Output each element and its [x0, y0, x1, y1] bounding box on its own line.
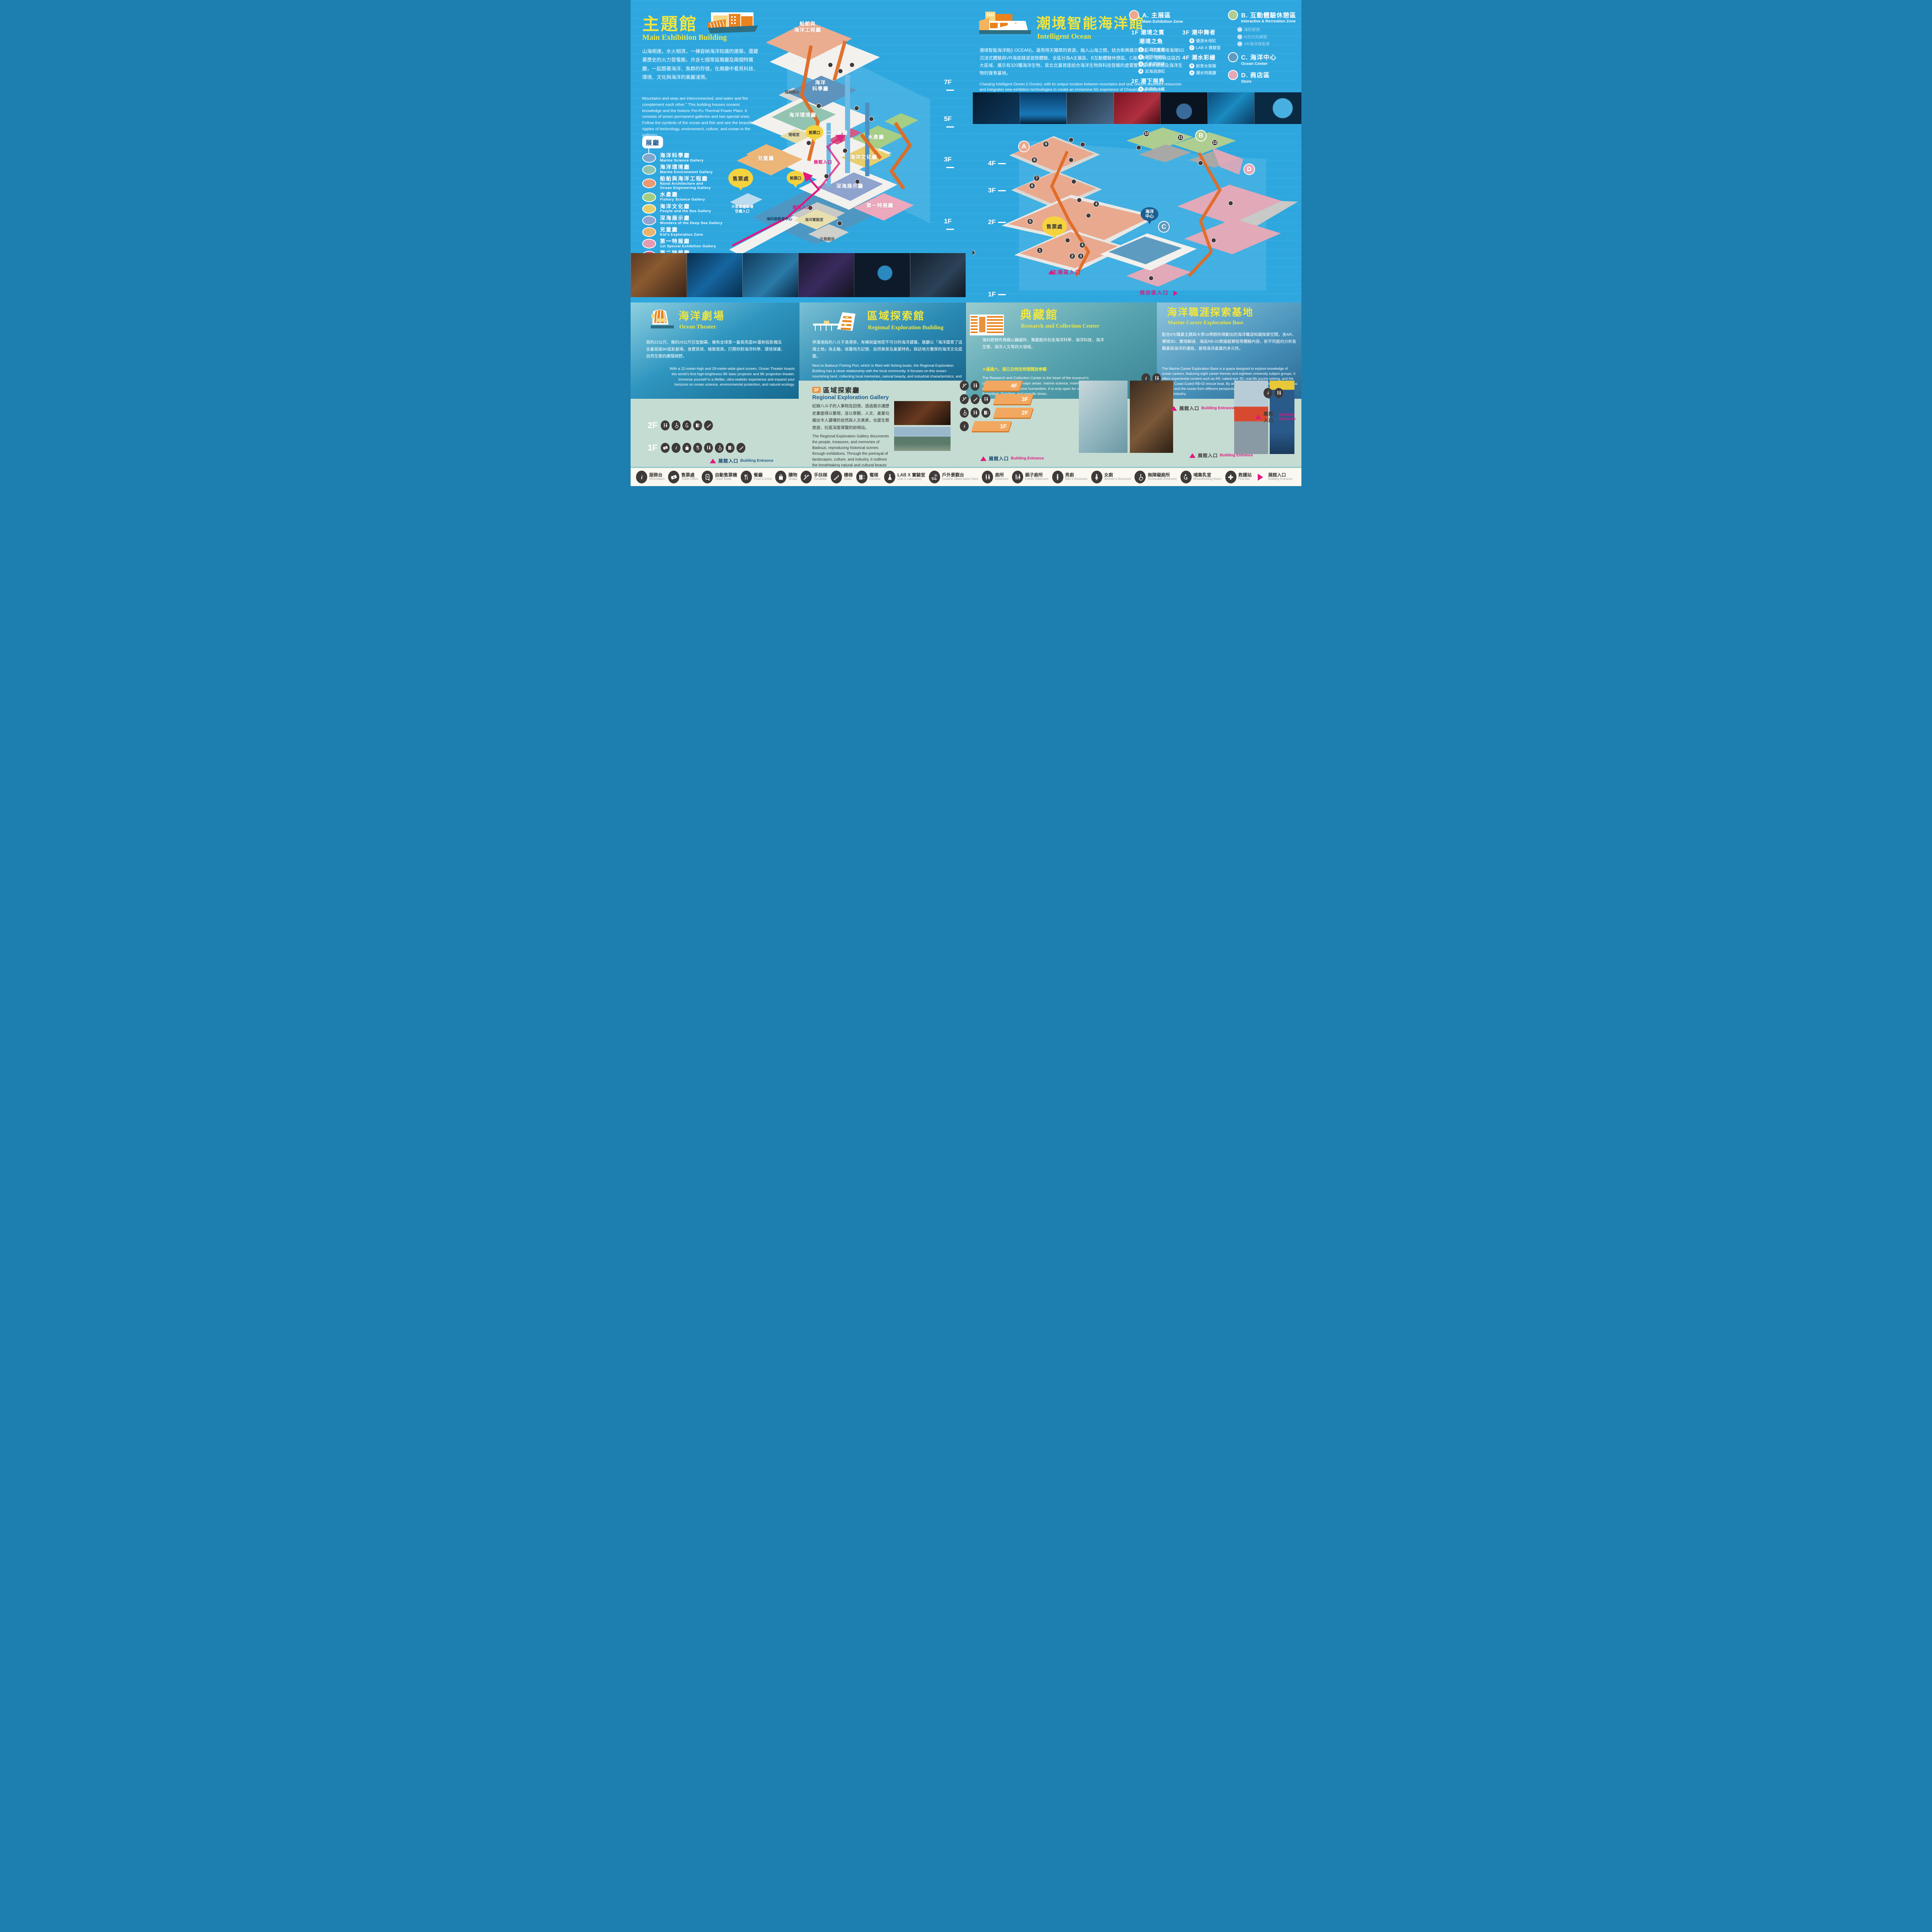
zone-floor-title: 3F 潮中舞者 [1182, 28, 1229, 36]
map-number-dot: 8 [1031, 157, 1037, 163]
main-building-photo-strip [631, 253, 966, 297]
photo-thumbnail [798, 253, 854, 297]
map-area-label: 海洋實驗室 [805, 218, 823, 223]
career-desc-zh: 配合8大職業主題與大學18學群所規劃出的海洋職涯知識探索空間，含AR、裸視3D、… [1162, 332, 1298, 352]
collection-photo-2 [1130, 381, 1173, 453]
main-zone-entrance-arrow [1048, 270, 1057, 274]
photo-thumbnail [973, 92, 1020, 124]
zone-item-label: N次元先鋒號 [1244, 34, 1267, 40]
photo-thumbnail [910, 253, 966, 297]
map-entrance-label: 商店區入口 [1139, 290, 1168, 296]
collection-title-zh: 典藏館 [1020, 305, 1058, 322]
map-pin: 售票處 [1042, 216, 1067, 236]
gallery-color-swatch [642, 153, 656, 163]
regional-desc-zh: 停滿漁船的八斗子漁港旁，有棟與當地密不可分的海洋建築，展廳以「海洋蘊育了這塊土地… [812, 339, 963, 360]
facility-legend-item: 展館入口 Building Entrance [1255, 471, 1293, 483]
facility-icon [775, 471, 786, 483]
intelligent-ocean-title-zh: 潮境智能海洋館 [1036, 12, 1145, 32]
facility-legend-bar: i 服務台 Information $ 售票處 Ticket Office $ … [631, 467, 1301, 486]
gallery-color-swatch [642, 239, 656, 248]
floor-bar: 3F [993, 394, 1033, 404]
photo-thumbnail [1066, 92, 1114, 124]
zoneB-items: 10海豹家族 11N次元先鋒號 12VR海洋保衛者 [1228, 27, 1301, 47]
facility-legend-item: 電梯 Elevator [856, 471, 881, 483]
photo-thumbnail [742, 253, 798, 297]
floor-label: 1F [648, 443, 661, 453]
collection-note-zh: ★僅週六、週日及特定時間開放參觀 [982, 366, 1106, 373]
photo-thumbnail [687, 253, 743, 297]
gallery-name-en: Naval Architecture and Ocean Engineering… [660, 182, 711, 190]
gallery-name-zh: 海洋科學廳 [660, 153, 704, 159]
regional-gallery-name-zh: 區域探索廳 [823, 385, 860, 395]
photo-thumbnail [1114, 92, 1161, 124]
gallery-name-en: Kid’s Exploration Zone [660, 233, 703, 237]
ocean-theater-desc-zh: 高約22公尺、寬約29公尺巨型銀幕，擁有全球第一臺高亮度8K雷射投影機及全臺首座… [646, 339, 785, 360]
gallery-color-swatch [642, 192, 656, 202]
facility-legend-item: 女廁 Women's Restroom [1091, 471, 1131, 483]
intelligent-ocean-icon [979, 11, 1033, 35]
facility-icon [884, 471, 895, 483]
facility-legend-item: $ 售票處 Ticket Office [668, 471, 698, 483]
facility-legend-item: 男廁 Men's Restroom [1052, 471, 1088, 483]
map-pin: 剪票口 [787, 171, 804, 185]
gallery-color-swatch [642, 216, 656, 225]
facility-name-en: Food & Drink [754, 478, 772, 481]
facility-name-en: Women's Restroom [1104, 478, 1131, 481]
gallery-name-zh: 海洋環境廳 [660, 165, 713, 170]
main-building-title-zh: 主題館 [642, 10, 698, 35]
main-building-title-en: Main Exhibition Building [642, 33, 727, 42]
facility-name-en: Men's Restroom [1065, 478, 1088, 481]
map-area-label: 第一特展廳 [866, 202, 893, 209]
regional-title-en: Regional Exploration Building [868, 325, 944, 331]
zone-item-number: 10 [1237, 27, 1242, 32]
building-entrance-label: 展館入口 Building Entrance [1171, 405, 1235, 412]
map-number-dot: 10 [1143, 131, 1150, 137]
zone-item-number: 12 [1237, 41, 1242, 46]
map-area-label: 海洋 科學廳 [812, 80, 828, 92]
map-area-label: 深海展示廳 [836, 183, 863, 189]
gallery-name-en: Fishery Science Gallery [660, 198, 705, 202]
map-area-label: 展館入口 [814, 160, 832, 165]
map-area-label: 階梯舞台 [785, 90, 799, 95]
museum-map-brochure: 主題館 Main Exhibition Building 山海相連，水火相濟，一… [631, 0, 1301, 486]
intelligent-ocean-floor-map: 主展區入口商店區入口 售票處 海洋 中心 4F3F2F1F ABCD 98765… [973, 124, 1301, 298]
map-number-dot: 1 [1037, 247, 1043, 253]
svg-text:i: i [1145, 376, 1147, 381]
map-area-label: 大客車停車場 空橋入口 [731, 205, 753, 214]
facility-name-en: Breastfeeding Room [1194, 478, 1222, 481]
gallery-color-swatch [642, 204, 656, 214]
facility-legend-item: 購物 Shops [775, 471, 797, 483]
floor-label: 3F [988, 187, 996, 194]
gallery-color-swatch [642, 165, 656, 175]
zone-badge: C [1158, 221, 1170, 233]
gallery-color-swatch [642, 227, 656, 237]
map-area-label: 生態廚房 [820, 237, 835, 242]
zone-badge: B [1195, 130, 1207, 141]
zone-item-label: 海豹家族 [1244, 27, 1260, 32]
facility-icon [831, 471, 842, 483]
facility-icon: $ [668, 471, 679, 483]
facility-legend-item: 戶外景觀台 Outdoor Observation Deck [929, 471, 979, 483]
facility-icon [982, 471, 993, 483]
facility-legend-item: 樓梯 Stairs [831, 471, 853, 483]
gallery-name-zh: 海洋文化廳 [660, 204, 711, 210]
gallery-name-en: 1st Special Exhibition Gallery [660, 245, 716, 249]
facility-legend-item: 手扶梯 Escalator [801, 471, 827, 483]
facility-legend-item: LAB X 實驗室 LAB X Laboratory [884, 471, 925, 483]
career-title-zh: 海洋職涯探索基地 [1167, 304, 1253, 319]
gallery-name-zh: 深海展示廳 [660, 216, 723, 221]
collection-title-en: Research and Collection Center [1021, 323, 1099, 330]
floor-label: 7F [944, 78, 952, 86]
zoneA-col1: 1F 潮境之賓 潮境之魚 1巨幕迎賓區2潮間俯視缸3互動觀察區4近海洄游缸 2F… [1131, 26, 1181, 92]
regional-gallery-desc-zh: 紀錄八斗子的人事物及回憶，透過展示讓歷史畫面得以重現，並以景觀、人文、產業勾繪出… [812, 403, 889, 432]
ocean-center-pin: 海洋 中心 [1141, 207, 1158, 221]
floor-bar: 2F [993, 408, 1033, 418]
facility-name-en: Shops [788, 478, 797, 481]
zone-floor-subtitle: 潮境之魚 [1139, 37, 1181, 45]
map-area-label: 兒童廳 [758, 155, 774, 162]
gallery-name-zh: 船舶與海洋工程廳 [660, 176, 711, 182]
photo-thumbnail [894, 401, 951, 425]
facility-icon [856, 471, 867, 483]
intelligent-ocean-title-en: Intelligent Ocean [1037, 32, 1091, 41]
zone-floor-title: 4F 潮水彩繪 [1182, 53, 1229, 61]
floor-bar: 1F [971, 421, 1012, 431]
photo-thumbnail [1254, 92, 1301, 124]
main-building-floor-map: 船舶與 海洋工程廳海洋 科學廳階梯舞台海洋環境廳簡報室水產廳兒童廳第二特展廳海洋… [729, 7, 961, 258]
collection-photo-1 [1079, 381, 1128, 453]
intelligent-ocean-photo-strip [973, 92, 1301, 124]
regional-title-zh: 區域探索館 [867, 308, 925, 323]
svg-text:i: i [964, 424, 965, 429]
gallery-color-swatch [642, 179, 656, 188]
zone-badge: A [1018, 141, 1030, 152]
facility-legend-item: 救護站 First Aid [1225, 471, 1252, 483]
gallery-name-en: People and the Sea Gallery [660, 209, 711, 214]
map-number-dot: 6 [1029, 183, 1035, 189]
ocean-theater-title-zh: 海洋劇場 [679, 308, 725, 323]
facility-name-en: Ticket Kiosk [715, 478, 737, 481]
map-number-dot: 9 [1043, 141, 1049, 147]
facility-legend-item: 無障礙廁所 Accessible Restroom [1134, 471, 1177, 483]
gallery-legend-chip: 展廳 [642, 136, 663, 148]
zone-item-label: VR海洋保衛者 [1244, 41, 1270, 47]
floor-bar: 4F [982, 381, 1022, 391]
floor-label: 2F [988, 218, 996, 226]
career-title-en: Marine Career Exploration Base [1168, 320, 1243, 326]
map-area-label: 海科館教育中心 [767, 217, 793, 222]
facility-legend-item: $ 自動售票機 Ticket Kiosk [702, 471, 737, 483]
gallery-name-en: Marine Environment Gallery [660, 170, 713, 175]
facility-legend-item: 哺集乳室 Breastfeeding Room [1180, 471, 1222, 483]
collection-icon [970, 314, 1005, 336]
facility-icon [929, 471, 940, 483]
map-number-dot: 2 [1069, 253, 1075, 259]
facility-name-en: Outdoor Observation Deck [942, 478, 979, 481]
facility-icon: $ [702, 471, 713, 483]
facility-name-en: LAB X Laboratory [897, 478, 925, 481]
regional-floor-stack: 4F 3F 2F i [960, 381, 1033, 452]
svg-text:i: i [641, 474, 643, 481]
facility-name-en: Building Entrance [1268, 478, 1293, 481]
facility-icon [1134, 471, 1146, 483]
floor-label: 1F [944, 218, 952, 225]
facility-icon [801, 471, 812, 483]
floor-label: 5F [944, 115, 952, 122]
zoneA-header: A. 主展區 Main Exhibition Zone [1129, 10, 1230, 24]
map-area-label: 海洋文化廳 [850, 154, 877, 160]
facility-icon: i [636, 471, 647, 483]
ocean-theater-title-en: Ocean Theater [679, 324, 716, 330]
photo-thumbnail [631, 253, 687, 297]
map-area-label: 第二特展廳 [821, 130, 848, 136]
zoneA-col2: 3F 潮中舞者 6優游水母缸7LAB X 實驗室 4F 潮水彩繪 8創意水族箱9… [1182, 26, 1229, 76]
gallery-name-en: Marine Science Gallery [660, 159, 704, 163]
map-number-dot: 7 [1034, 175, 1040, 181]
svg-text:i: i [675, 446, 677, 451]
map-area-label: 海洋環境廳 [789, 112, 816, 118]
ocean-theater-icon [651, 308, 675, 328]
map-number-dot: 4 [1093, 201, 1099, 207]
photo-thumbnail [1020, 92, 1067, 124]
collection-desc-zh: 海科館物件典藏心臟處所，蒐藏面向包含海洋科學、海洋科技、海洋生態、海洋人文等四大… [982, 337, 1106, 351]
zone-floor-title: 2F 潮下視界 [1131, 77, 1181, 85]
map-number-dot: 11 [1177, 134, 1184, 141]
photo-thumbnail [854, 253, 910, 297]
facility-icon [1012, 471, 1023, 483]
map-number-dot: 12 [1212, 139, 1218, 146]
map-number-dot: 3 [1078, 253, 1084, 259]
floor-label: 4F [988, 160, 996, 167]
facility-icon [1225, 471, 1236, 483]
facility-name-en: Accessible Restroom [1148, 478, 1177, 481]
floor-label: 3F [944, 156, 952, 163]
gallery-name-zh: 第一特展廳 [660, 239, 716, 245]
facility-icon [741, 471, 752, 483]
facility-icon [1052, 471, 1063, 483]
ocean-theater-desc-en: With a 22-meter-high and 29-meter-wide g… [667, 366, 795, 388]
facility-icon [1091, 471, 1102, 483]
photo-thumbnail [1207, 92, 1255, 124]
facility-icon [1255, 471, 1266, 483]
map-pin: 售票處 [728, 168, 753, 188]
facility-name-en: Escalator [814, 478, 827, 481]
floor-label: 1F [988, 291, 996, 298]
map-number-dot: 4 [1079, 242, 1085, 248]
regional-entrance: 展館入口 Building Entrance [980, 455, 1044, 462]
zone-item-number: 11 [1237, 34, 1242, 39]
facility-name-en: Restroom [995, 478, 1009, 481]
photo-thumbnail [894, 427, 951, 451]
regional-icon [812, 311, 858, 334]
gallery-name-zh: 兒童廳 [660, 227, 703, 233]
map-area-label: 展館入口 [793, 205, 811, 211]
gallery-name-en: Wonders of the Deep Sea Gallery [660, 221, 723, 226]
photo-thumbnail [1160, 92, 1207, 124]
building-entrance-label: 展館入口 Building Entrance [1255, 410, 1301, 423]
zone-badge: D [1243, 163, 1255, 175]
zone-bcd-legend: B. 互動體驗休憩區 Interactive & Recreation Zone… [1228, 10, 1301, 87]
svg-text:$: $ [707, 476, 708, 478]
floor-label: 2F [648, 420, 661, 430]
zone-floor-title: 1F 潮境之賓 [1131, 28, 1181, 36]
floor-tag: 3F [812, 387, 821, 393]
facility-legend-item: i 服務台 Information [636, 471, 665, 483]
map-area-label: 水產廳 [868, 134, 884, 140]
map-area-label: 簡報室 [789, 133, 800, 138]
map-number-dot: 5 [1027, 218, 1033, 224]
facility-name-en: First Aid [1238, 478, 1252, 481]
store-zone-entrance-arrow [1173, 291, 1182, 296]
regional-gallery-name-en: Regional Exploration Gallery [812, 395, 889, 401]
regional-gallery-photos [894, 401, 951, 453]
facility-legend-item: 親子廁所 Family Restroom [1012, 471, 1048, 483]
gallery-name-zh: 水產廳 [660, 192, 705, 198]
facility-name-en: Stairs [844, 478, 853, 481]
facility-name-en: Elevator [869, 478, 881, 481]
facility-icon [1180, 471, 1192, 483]
map-area-label: 船舶與 海洋工程廳 [794, 21, 821, 34]
facility-legend-item: 餐廳 Food & Drink [741, 471, 772, 483]
facility-legend-item: 廁所 Restroom [982, 471, 1009, 483]
facility-name-en: Family Restroom [1025, 478, 1048, 481]
svg-text:i: i [1267, 391, 1269, 396]
zoneA-badge [1129, 10, 1139, 20]
ocean-theater-entrance: 展館入口 Building Entrance [710, 457, 774, 464]
facility-name-en: Information [649, 478, 665, 481]
building-entrance-label: 展館入口 Building Entrance [1189, 452, 1253, 459]
facility-name-en: Ticket Office [681, 478, 698, 481]
map-pin: 剪票口 [806, 125, 823, 139]
